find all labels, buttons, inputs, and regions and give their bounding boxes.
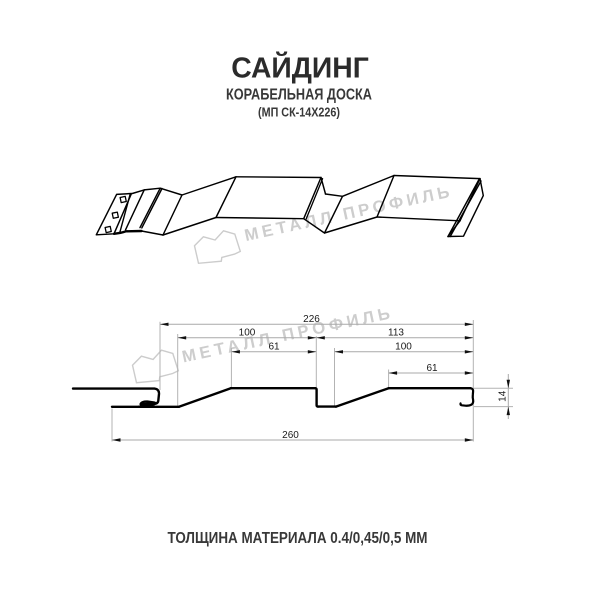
svg-text:САЙДИНГ: САЙДИНГ xyxy=(231,52,369,85)
svg-text:100: 100 xyxy=(239,328,256,339)
svg-text:113: 113 xyxy=(388,328,404,339)
svg-text:(МП СК-14Х226): (МП СК-14Х226) xyxy=(258,106,340,120)
svg-text:ТОЛЩИНА МАТЕРИАЛА 0.4/0,45/0,5: ТОЛЩИНА МАТЕРИАЛА 0.4/0,45/0,5 ММ xyxy=(168,530,428,547)
svg-text:14: 14 xyxy=(498,390,509,402)
svg-text:КОРАБЕЛЬНАЯ ДОСКА: КОРАБЕЛЬНАЯ ДОСКА xyxy=(226,87,372,104)
svg-text:100: 100 xyxy=(395,342,412,353)
svg-text:226: 226 xyxy=(303,314,320,325)
svg-text:61: 61 xyxy=(268,342,280,353)
svg-text:61: 61 xyxy=(426,363,438,374)
svg-text:260: 260 xyxy=(282,430,299,441)
